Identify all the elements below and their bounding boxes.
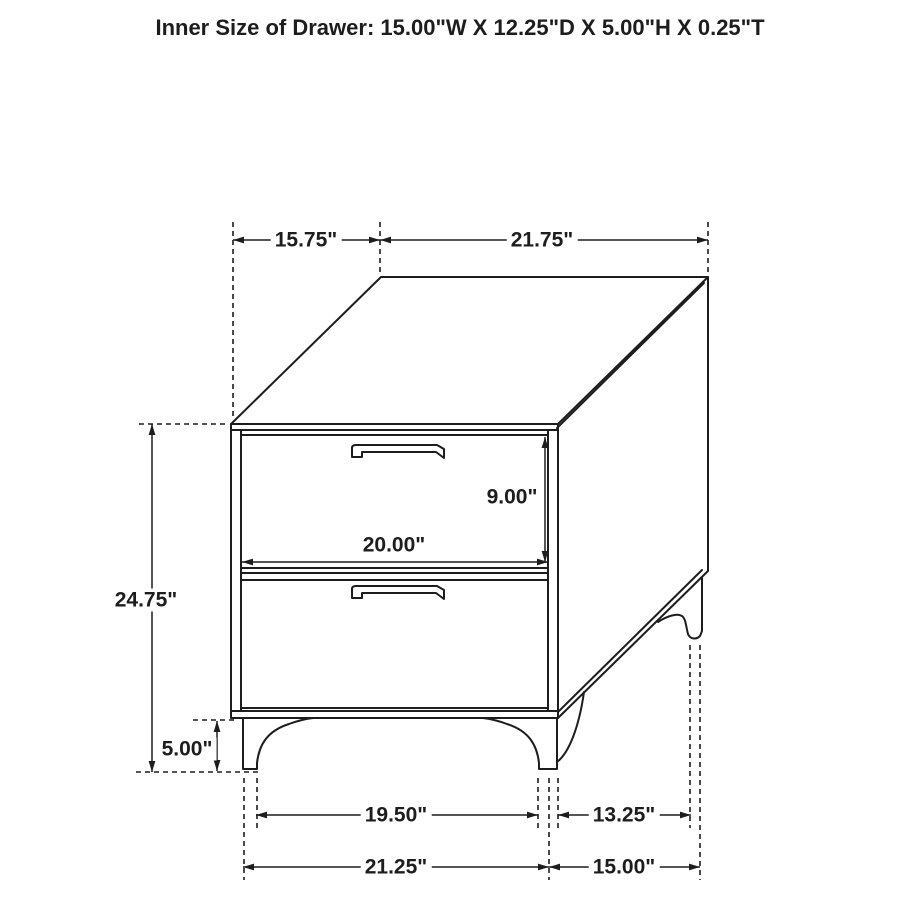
drawer-handle bbox=[352, 586, 444, 599]
dim-label-front-feet-outer-span: 21.25" bbox=[361, 856, 432, 879]
drawer-handle bbox=[352, 445, 444, 458]
dimension-diagram: Inner Size of Drawer: 15.00"W X 12.25"D … bbox=[0, 0, 900, 900]
drawer-bottom-front bbox=[241, 580, 548, 708]
front-right-leg-side bbox=[557, 692, 584, 762]
nightstand-line-drawing bbox=[0, 0, 900, 900]
dim-label-drawer-face-height: 9.00" bbox=[483, 486, 542, 509]
dim-label-top-depth: 15.75" bbox=[271, 229, 342, 252]
dim-label-top-width: 21.75" bbox=[507, 229, 578, 252]
dim-label-overall-height: 24.75" bbox=[111, 589, 182, 612]
dimension-lines bbox=[152, 240, 708, 867]
cabinet-front bbox=[231, 424, 558, 718]
front-left-leg bbox=[243, 718, 313, 769]
dim-label-leg-height: 5.00" bbox=[158, 738, 217, 761]
furniture-outline bbox=[231, 277, 708, 769]
dim-label-front-feet-inner-span: 19.50" bbox=[361, 804, 432, 827]
side-panel bbox=[558, 277, 708, 718]
dim-label-side-feet-outer-span: 15.00" bbox=[589, 856, 660, 879]
dim-label-side-feet-inner-span: 13.25" bbox=[589, 804, 660, 827]
dim-label-drawer-face-width: 20.00" bbox=[359, 534, 430, 557]
front-right-leg bbox=[483, 718, 557, 769]
